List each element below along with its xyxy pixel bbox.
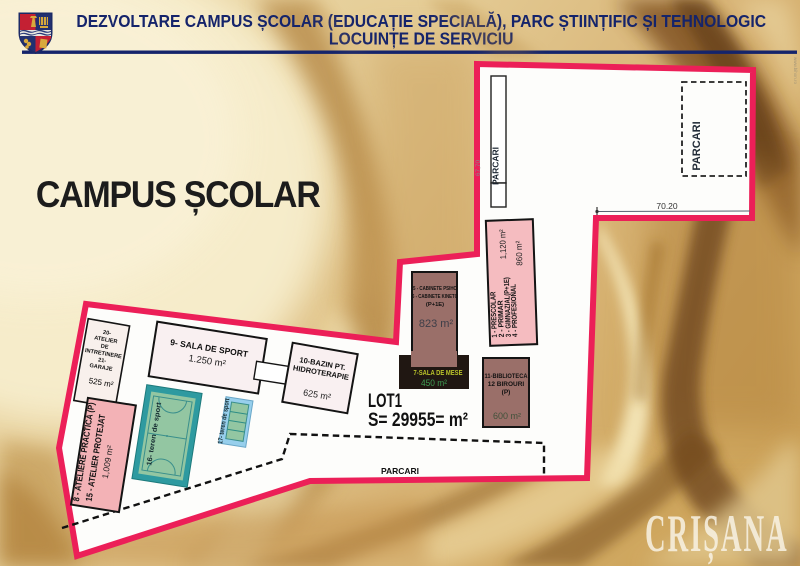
- svg-text:1,120 m²: 1,120 m²: [497, 229, 508, 259]
- svg-text:PARCARI: PARCARI: [381, 466, 419, 476]
- svg-text:11-BIBLIOTECA: 11-BIBLIOTECA: [485, 373, 528, 380]
- svg-text:CAMPUS ȘCOLAR: CAMPUS ȘCOLAR: [36, 175, 320, 216]
- svg-text:7-SALA DE MESE: 7-SALA DE MESE: [414, 368, 463, 377]
- svg-text:823 m²: 823 m²: [419, 318, 454, 330]
- svg-text:S= 29955= m²: S= 29955= m²: [368, 409, 468, 431]
- svg-text:CRIȘANA: CRIȘANA: [645, 505, 789, 565]
- svg-text:70.20: 70.20: [656, 201, 678, 211]
- svg-text:PARCARI: PARCARI: [491, 147, 501, 185]
- svg-text:www.bihon.ro: www.bihon.ro: [793, 57, 798, 85]
- svg-text:450 m²: 450 m²: [421, 378, 447, 389]
- svg-text:12 BIROURI: 12 BIROURI: [488, 381, 525, 388]
- svg-text:(P): (P): [502, 389, 511, 396]
- svg-text:600 m²: 600 m²: [493, 411, 521, 421]
- svg-text:5 - CABINETE PSIHO: 5 - CABINETE PSIHO: [413, 286, 457, 292]
- svg-text:4 - PROFESIONAL: 4 - PROFESIONAL: [509, 283, 520, 337]
- svg-text:860 m²: 860 m²: [514, 240, 525, 265]
- svg-text:6 - CABINETE KINETO: 6 - CABINETE KINETO: [412, 294, 458, 300]
- svg-text:67,70: 67,70: [475, 159, 482, 176]
- svg-text:PARCARI: PARCARI: [691, 121, 703, 170]
- svg-text:(P+1E): (P+1E): [426, 302, 444, 308]
